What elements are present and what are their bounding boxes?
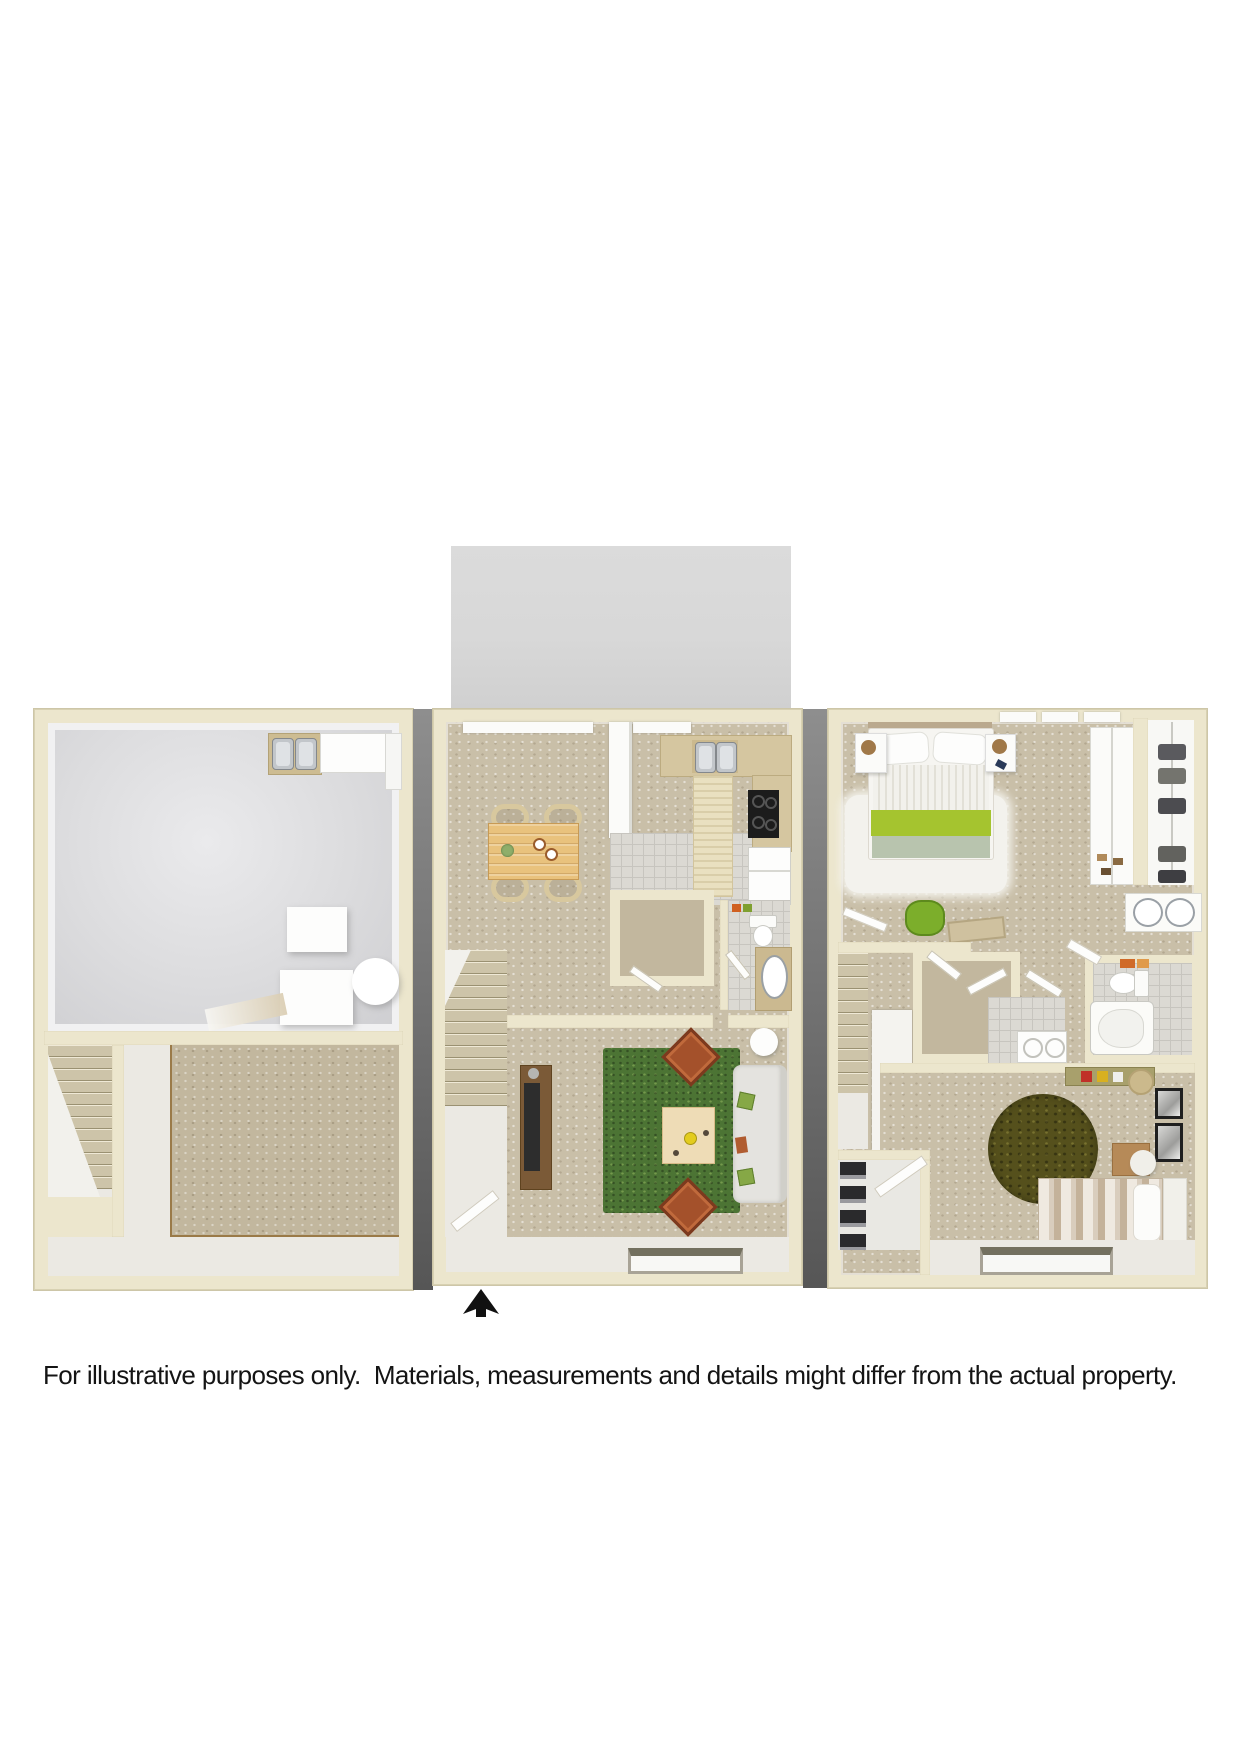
towel-tan: [1137, 959, 1149, 968]
towel-orange: [732, 904, 741, 912]
laundry-hamper-green: [905, 900, 945, 936]
table-plant: [501, 844, 514, 857]
sheet-striped: [873, 765, 989, 810]
towel-green: [743, 904, 752, 912]
closet-wall: [1133, 718, 1148, 885]
appliance-box-large: [280, 970, 353, 1025]
toilet-tank: [1134, 970, 1149, 997]
dryer-door: [1045, 1038, 1065, 1058]
sofa-pillow-rust: [735, 1136, 748, 1153]
shoes: [1097, 854, 1107, 861]
bedroom2-window: [980, 1247, 1113, 1275]
disclaimer-text: For illustrative purposes only. Material…: [43, 1360, 1213, 1391]
table-item: [703, 1130, 709, 1136]
side-table-round: [750, 1028, 778, 1056]
pillow: [1133, 1184, 1161, 1241]
basement-hall: [124, 1045, 170, 1237]
storage-box-white: [1113, 1072, 1123, 1082]
vanity-sink: [1133, 898, 1163, 927]
shoes: [1101, 868, 1111, 875]
bedroom-window: [1000, 712, 1036, 722]
entry-arrow-icon: [463, 1289, 499, 1317]
main-staircase: [445, 950, 507, 1112]
table-item: [673, 1150, 679, 1156]
basement-entry-hall: [48, 1237, 399, 1276]
kitchen-runner-rug: [693, 775, 733, 897]
sofa-pillow-floral: [737, 1092, 756, 1111]
gray-extension-block: [451, 546, 791, 709]
dining-table: [488, 823, 579, 880]
upper-staircase: [838, 953, 868, 1093]
metal-shelving-rack: [840, 1162, 866, 1250]
washer-door: [1023, 1038, 1043, 1058]
sofa: [733, 1065, 787, 1203]
walk-in-closet: [1148, 720, 1194, 885]
bed-headboard-stand: [1163, 1178, 1187, 1242]
kitchen-sink-basin-left: [695, 742, 716, 773]
stove-cooktop: [748, 790, 779, 838]
burner: [765, 819, 777, 831]
storage-cabinet-end: [385, 733, 402, 790]
bedroom-window: [1042, 712, 1078, 722]
stair-landing: [445, 1112, 507, 1237]
bathtub: [1090, 1001, 1154, 1055]
burner: [752, 816, 765, 829]
burner: [752, 795, 765, 808]
water-heater-tank: [352, 958, 399, 1005]
basement-rec-room: [170, 1045, 399, 1237]
hanging-clothes: [1158, 744, 1186, 760]
blanket-green: [871, 810, 991, 836]
utility-sink-basin-left: [272, 738, 294, 770]
bedroom-window: [1084, 712, 1120, 722]
twin-bed: [1038, 1178, 1163, 1246]
desk-stool: [1130, 1150, 1156, 1176]
tub-basin: [1098, 1009, 1144, 1048]
sofa-pillow-floral: [737, 1168, 756, 1187]
pantry-closet: [610, 890, 714, 986]
vanity-sink: [1165, 898, 1195, 927]
living-room-window: [628, 1248, 743, 1274]
storage-box-yellow: [1097, 1071, 1108, 1082]
basement-dividing-wall: [44, 1031, 403, 1045]
lamp: [992, 739, 1007, 754]
refrigerator: [748, 847, 791, 905]
dining-kitchen-partition: [609, 722, 632, 838]
table-plates: [545, 848, 558, 861]
hanging-clothes: [1158, 870, 1186, 883]
storage-closet-wall-v: [920, 1160, 930, 1275]
main-floor-plan: [433, 709, 802, 1285]
stair-wall: [112, 1045, 124, 1237]
upper-floor-plan: [828, 709, 1207, 1288]
storage-box-red: [1081, 1071, 1092, 1082]
tv-console: [520, 1065, 552, 1190]
closet-double-doors: [1090, 727, 1135, 885]
floor-lamp-shade: [1128, 1069, 1154, 1095]
hanging-clothes: [1158, 768, 1186, 784]
floor-plan-sheet: For illustrative purposes only. Material…: [0, 0, 1240, 1754]
coffee-table: [662, 1107, 715, 1164]
basement-staircase: [48, 1045, 112, 1197]
washer-dryer: [1017, 1031, 1067, 1063]
fridge-seam: [749, 870, 790, 872]
upper-stair-hall: [838, 1093, 868, 1149]
speaker: [528, 1068, 539, 1079]
bowl-yellow: [684, 1132, 697, 1145]
pillow: [932, 731, 988, 766]
utility-sink-basin-right: [295, 738, 317, 770]
kitchen-sink-basin-right: [716, 742, 737, 773]
toilet-bowl: [753, 925, 773, 947]
plan-gap-shadow-right: [803, 709, 828, 1288]
basement-floor-plan: [34, 709, 413, 1290]
hanging-clothes: [1158, 846, 1186, 862]
appliance-box-small: [287, 907, 347, 952]
table-plates: [533, 838, 546, 851]
blanket-sage: [872, 836, 990, 858]
vanity-sink: [761, 955, 788, 999]
dining-window: [463, 722, 593, 733]
lamp: [861, 740, 876, 755]
wall-art-frame: [1155, 1123, 1183, 1162]
plan-gap-shadow-left: [413, 709, 433, 1290]
wall-art-frame: [1155, 1088, 1183, 1119]
shoes: [1113, 858, 1123, 865]
tv-screen: [524, 1083, 540, 1171]
living-room-wall-right: [728, 1015, 789, 1028]
hanging-clothes: [1158, 798, 1186, 814]
towel-orange: [1120, 959, 1135, 968]
living-room-wall: [507, 1015, 713, 1028]
kitchen-window: [633, 722, 691, 733]
burner: [765, 797, 777, 809]
